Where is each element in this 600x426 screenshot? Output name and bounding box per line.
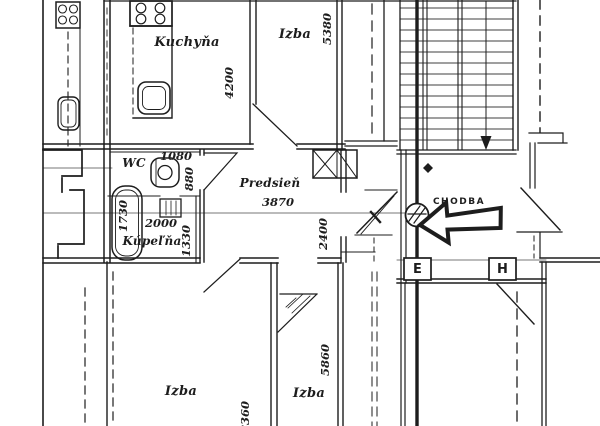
meter-box-h: H — [489, 258, 516, 280]
kitchen-sink-icon — [138, 82, 170, 114]
washbasin-icon — [160, 199, 181, 217]
opposite-door-swing — [521, 188, 560, 230]
stove-icon — [130, 1, 172, 26]
lower-door-swing — [497, 284, 534, 324]
dim-wc-depth: 880 — [182, 165, 196, 193]
stairs-direction-arrow — [481, 2, 492, 150]
room-label-kuchyna: Kuchyňa — [152, 36, 222, 50]
dim-predsien-depth: 2400 — [316, 216, 330, 252]
dim-kuchyna-depth: 4200 — [222, 65, 236, 101]
dim-wc-width: 1080 — [158, 149, 194, 163]
floor-plan-drawing — [0, 0, 600, 426]
staircase — [397, 0, 518, 154]
dim-predsien-width: 3870 — [258, 195, 298, 209]
room-label-izba-bottom-right: Izba — [287, 387, 331, 401]
room-label-predsien: Predsieň — [230, 176, 310, 190]
room-label-izba-bottom-left: Izba — [159, 385, 203, 399]
neighbor-sink-icon — [58, 97, 79, 130]
meter-box-e: E — [404, 258, 431, 280]
shaft-symbol — [313, 150, 357, 178]
dim-izba-bottom-left-depth: 8360 — [238, 397, 252, 426]
izba-door-swing — [253, 104, 297, 146]
room-label-chodba: CHODBA — [429, 195, 489, 209]
dim-kupelna-width: 2000 — [141, 216, 181, 230]
floor-plan: Kuchyňa Izba WC Predsieň Kúpeľňa CHODBA … — [0, 0, 600, 426]
bottom-right-door-swing — [278, 294, 317, 332]
neighbor-bath-walls — [43, 150, 84, 258]
dim-kupelna-depth: 1330 — [179, 223, 193, 259]
dim-bathtub-length: 1730 — [116, 198, 130, 234]
dim-izba-top-width: 5380 — [320, 11, 334, 47]
room-label-kupelna: Kúpeľňa — [120, 234, 184, 248]
section-marker-diamond — [423, 163, 433, 173]
neighbor-stove-icon — [56, 2, 80, 28]
dim-izba-bottom-right-depth: 5860 — [318, 340, 332, 380]
bottom-left-door-swing — [204, 259, 240, 292]
room-label-wc: WC — [119, 156, 149, 170]
room-label-izba-top: Izba — [275, 28, 315, 42]
